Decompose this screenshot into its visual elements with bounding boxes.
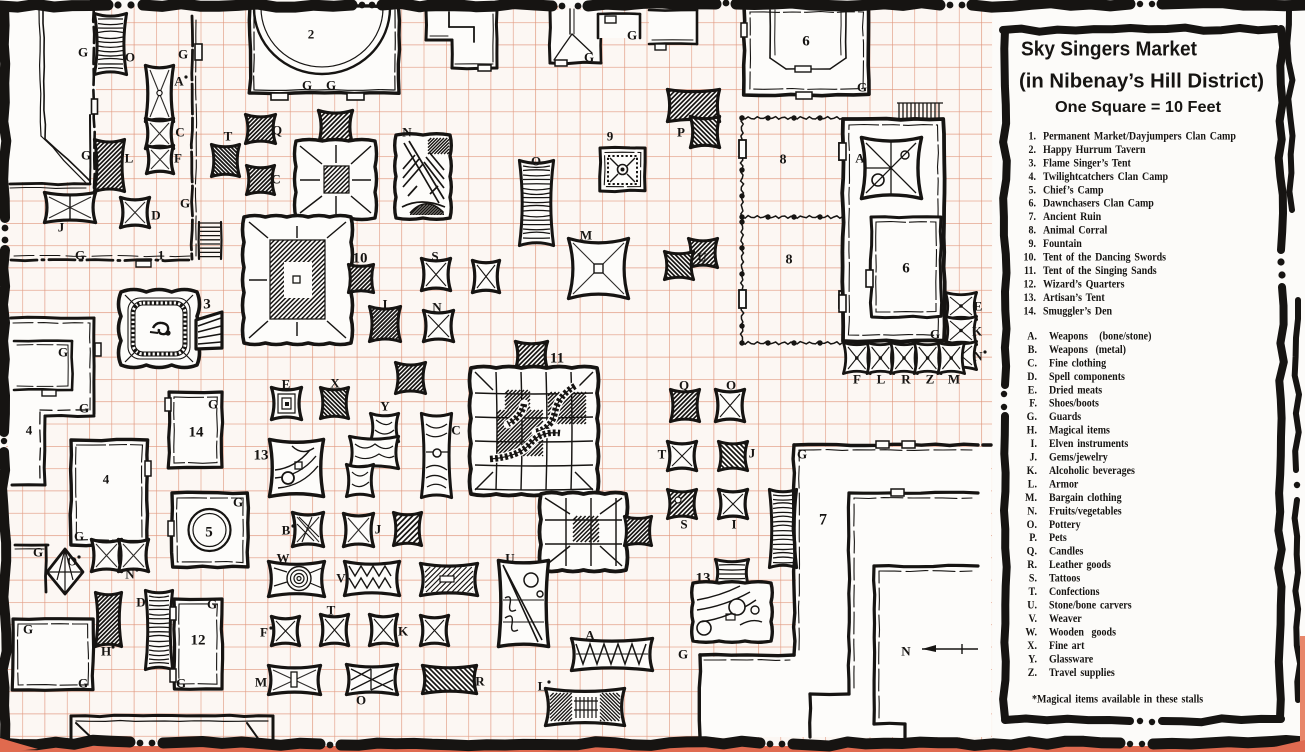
- svg-text:G: G: [81, 148, 91, 163]
- svg-text:Wizard’s Quarters: Wizard’s Quarters: [1043, 278, 1125, 291]
- svg-text:L: L: [538, 679, 547, 694]
- svg-text:F: F: [853, 372, 861, 387]
- svg-text:8: 8: [786, 253, 793, 268]
- svg-text:Armor: Armor: [1049, 478, 1079, 491]
- svg-text:Confections: Confections: [1049, 585, 1100, 598]
- svg-text:10.: 10.: [1024, 251, 1037, 264]
- svg-text:11.: 11.: [1024, 264, 1036, 277]
- svg-text:Candles: Candles: [1049, 545, 1083, 558]
- svg-text:Spell components: Spell components: [1049, 370, 1125, 383]
- svg-text:D: D: [151, 208, 160, 223]
- svg-text:J: J: [749, 446, 756, 461]
- svg-text:Weaver: Weaver: [1049, 612, 1082, 625]
- svg-text:6: 6: [802, 34, 810, 50]
- svg-text:Weapons (bone/stone): Weapons (bone/stone): [1049, 330, 1152, 343]
- svg-text:Pets: Pets: [1049, 532, 1067, 545]
- svg-text:(in Nibenay’s Hill District): (in Nibenay’s Hill District): [1019, 71, 1264, 93]
- svg-text:Guards: Guards: [1049, 411, 1081, 424]
- svg-text:Pottery: Pottery: [1049, 518, 1081, 531]
- svg-text:G: G: [79, 401, 89, 416]
- svg-text:Animal Corral: Animal Corral: [1043, 224, 1107, 237]
- svg-text:L: L: [877, 372, 886, 387]
- svg-text:D.: D.: [1027, 370, 1037, 383]
- svg-text:E: E: [974, 299, 983, 314]
- svg-text:W.: W.: [1025, 626, 1037, 639]
- svg-text:Fruits/vegetables: Fruits/vegetables: [1049, 505, 1122, 518]
- svg-text:M: M: [948, 372, 960, 387]
- svg-text:P.: P.: [1029, 532, 1037, 545]
- svg-text:5: 5: [205, 525, 213, 541]
- svg-text:Tattoos: Tattoos: [1049, 572, 1080, 585]
- svg-text:Chief’s Camp: Chief’s Camp: [1043, 184, 1104, 197]
- svg-text:K.: K.: [1027, 464, 1038, 477]
- svg-text:7.: 7.: [1029, 211, 1037, 224]
- svg-text:M.: M.: [1025, 491, 1037, 504]
- svg-text:3: 3: [203, 297, 211, 313]
- svg-text:12.: 12.: [1024, 278, 1037, 291]
- svg-text:I.: I.: [1031, 437, 1038, 450]
- svg-text:X.: X.: [1027, 639, 1037, 652]
- svg-text:9: 9: [607, 129, 614, 144]
- svg-text:L: L: [125, 151, 134, 166]
- svg-text:10: 10: [353, 251, 368, 267]
- svg-text:2.: 2.: [1029, 143, 1037, 156]
- svg-text:G: G: [78, 676, 88, 691]
- svg-text:Q: Q: [272, 123, 282, 138]
- svg-text:G: G: [75, 248, 85, 263]
- svg-text:5.: 5.: [1029, 184, 1037, 197]
- svg-text:Smuggler’s Den: Smuggler’s Den: [1043, 305, 1112, 318]
- svg-text:F.: F.: [1029, 397, 1037, 410]
- svg-text:J.: J.: [1029, 451, 1037, 464]
- svg-text:W: W: [277, 551, 290, 566]
- svg-text:G: G: [584, 50, 594, 65]
- svg-text:G: G: [678, 647, 688, 662]
- svg-text:G: G: [176, 676, 186, 691]
- svg-text:K: K: [972, 324, 983, 339]
- svg-text:G: G: [78, 45, 88, 60]
- svg-text:11: 11: [550, 351, 564, 367]
- svg-text:G: G: [233, 495, 243, 510]
- svg-text:T: T: [658, 447, 667, 462]
- svg-text:E: E: [282, 377, 291, 392]
- svg-text:X: X: [330, 376, 340, 391]
- svg-text:Glassware: Glassware: [1049, 653, 1093, 666]
- svg-text:S: S: [431, 249, 438, 264]
- svg-text:Magical items: Magical items: [1049, 424, 1110, 437]
- svg-text:O: O: [125, 50, 135, 65]
- svg-text:K: K: [398, 624, 409, 639]
- svg-text:C: C: [175, 125, 184, 140]
- svg-text:T: T: [327, 603, 336, 618]
- svg-text:Sky Singers Market: Sky Singers Market: [1021, 39, 1197, 61]
- svg-text:13: 13: [696, 571, 711, 587]
- svg-text:R.: R.: [1027, 559, 1037, 572]
- svg-text:D: D: [136, 595, 145, 610]
- svg-text:U: U: [505, 551, 515, 566]
- svg-text:F: F: [174, 151, 182, 166]
- svg-text:M: M: [255, 675, 267, 690]
- svg-text:Wooden goods: Wooden goods: [1049, 626, 1116, 639]
- svg-text:N: N: [125, 567, 135, 582]
- svg-text:1: 1: [158, 248, 165, 263]
- svg-text:7: 7: [819, 512, 827, 529]
- svg-text:C.: C.: [1027, 357, 1037, 370]
- svg-text:G: G: [33, 545, 43, 560]
- svg-text:Q: Q: [679, 378, 689, 393]
- svg-text:Gems/jewelry: Gems/jewelry: [1049, 451, 1108, 464]
- svg-text:Permanent Market/Dayjumpers Cl: Permanent Market/Dayjumpers Clan Camp: [1043, 130, 1236, 143]
- svg-text:Y.: Y.: [1028, 653, 1037, 666]
- svg-text:V.: V.: [1029, 612, 1038, 625]
- svg-text:O: O: [531, 154, 541, 169]
- svg-text:Q.: Q.: [1027, 545, 1038, 558]
- svg-text:G: G: [207, 597, 217, 612]
- svg-text:Travel supplies: Travel supplies: [1049, 666, 1115, 679]
- svg-text:G: G: [23, 622, 33, 637]
- svg-text:R: R: [475, 674, 485, 689]
- svg-text:3.: 3.: [1029, 157, 1037, 170]
- svg-text:O.: O.: [1027, 518, 1038, 531]
- svg-text:Y: Y: [380, 399, 390, 414]
- svg-text:O: O: [356, 693, 366, 708]
- svg-text:4.: 4.: [1029, 170, 1037, 183]
- svg-text:Z: Z: [926, 372, 935, 387]
- svg-text:J: J: [58, 220, 65, 235]
- svg-text:Dawnchasers Clan Camp: Dawnchasers Clan Camp: [1043, 197, 1154, 210]
- svg-text:Shoes/boots: Shoes/boots: [1049, 397, 1099, 410]
- svg-text:A: A: [585, 628, 595, 643]
- svg-text:H.: H.: [1027, 424, 1038, 437]
- svg-text:G: G: [930, 327, 940, 342]
- svg-text:I: I: [382, 297, 387, 312]
- svg-text:Happy Hurrum Tavern: Happy Hurrum Tavern: [1043, 143, 1146, 156]
- svg-text:L.: L.: [1028, 478, 1037, 491]
- svg-text:T.: T.: [1029, 585, 1038, 598]
- svg-text:Leather goods: Leather goods: [1049, 559, 1111, 572]
- svg-text:Tent of the Singing Sands: Tent of the Singing Sands: [1043, 264, 1157, 277]
- svg-text:G: G: [857, 80, 867, 95]
- svg-text:G: G: [797, 447, 807, 462]
- svg-text:A: A: [855, 151, 865, 166]
- svg-text:S: S: [680, 517, 687, 532]
- svg-text:14: 14: [189, 425, 205, 441]
- svg-text:4: 4: [26, 423, 33, 438]
- svg-text:Fine clothing: Fine clothing: [1049, 357, 1107, 370]
- svg-text:Dried meats: Dried meats: [1049, 384, 1102, 397]
- svg-text:I: I: [731, 517, 736, 532]
- svg-text:G: G: [58, 345, 68, 360]
- svg-text:Fine art: Fine art: [1049, 639, 1085, 652]
- svg-text:U: U: [697, 250, 707, 265]
- svg-text:H: H: [101, 644, 111, 659]
- svg-text:G: G: [302, 78, 312, 93]
- svg-text:A.: A.: [1027, 330, 1037, 343]
- svg-text:R: R: [901, 372, 911, 387]
- svg-text:G: G: [627, 28, 637, 43]
- svg-text:V: V: [336, 571, 346, 586]
- svg-text:M: M: [580, 228, 592, 243]
- svg-text:Bargain clothing: Bargain clothing: [1049, 491, 1122, 504]
- svg-text:N: N: [432, 300, 442, 315]
- svg-text:O: O: [726, 378, 736, 393]
- svg-text:N: N: [901, 644, 911, 659]
- svg-text:C: C: [271, 172, 280, 187]
- svg-text:F: F: [260, 625, 268, 640]
- svg-text:B.: B.: [1028, 343, 1037, 356]
- svg-text:8: 8: [780, 153, 787, 168]
- svg-text:T: T: [224, 129, 233, 144]
- svg-text:Stone/bone carvers: Stone/bone carvers: [1049, 599, 1132, 612]
- svg-text:13: 13: [254, 448, 269, 464]
- svg-text:One Square = 10 Feet: One Square = 10 Feet: [1055, 99, 1222, 116]
- svg-text:N: N: [402, 125, 412, 140]
- svg-text:C: C: [451, 423, 460, 438]
- svg-text:Twilightcatchers Clan Camp: Twilightcatchers Clan Camp: [1043, 170, 1168, 183]
- svg-text:S.: S.: [1029, 572, 1037, 585]
- svg-text:Elven instruments: Elven instruments: [1049, 437, 1128, 450]
- svg-text:8.: 8.: [1029, 224, 1037, 237]
- svg-text:P: P: [677, 125, 685, 140]
- svg-text:N: N: [973, 349, 983, 364]
- svg-text:Weapons (metal): Weapons (metal): [1049, 343, 1126, 356]
- svg-text:U.: U.: [1027, 599, 1037, 612]
- svg-text:J: J: [375, 522, 382, 537]
- svg-text:O: O: [67, 554, 77, 569]
- svg-text:G.: G.: [1027, 411, 1038, 424]
- svg-text:Tent of the Dancing Swords: Tent of the Dancing Swords: [1043, 251, 1166, 264]
- svg-text:12: 12: [191, 633, 206, 649]
- svg-text:Flame Singer’s Tent: Flame Singer’s Tent: [1043, 157, 1131, 170]
- svg-text:A: A: [174, 74, 184, 89]
- svg-text:6.: 6.: [1029, 197, 1037, 210]
- svg-text:1.: 1.: [1029, 130, 1037, 143]
- svg-text:Alcoholic beverages: Alcoholic beverages: [1049, 464, 1135, 477]
- svg-text:14.: 14.: [1024, 305, 1037, 318]
- svg-text:2: 2: [308, 27, 315, 42]
- svg-text:G: G: [208, 397, 218, 412]
- svg-text:4: 4: [103, 472, 110, 487]
- svg-text:Ancient Ruin: Ancient Ruin: [1043, 211, 1101, 224]
- svg-text:9.: 9.: [1029, 237, 1037, 250]
- svg-text:N.: N.: [1027, 505, 1037, 518]
- svg-text:Fountain: Fountain: [1043, 237, 1082, 250]
- svg-text:G: G: [180, 196, 190, 211]
- svg-text:E.: E.: [1028, 384, 1037, 397]
- svg-text:*Magical items available in th: *Magical items available in these stalls: [1032, 693, 1203, 706]
- svg-text:G: G: [178, 47, 188, 62]
- svg-text:B: B: [282, 523, 291, 538]
- svg-text:G: G: [74, 529, 84, 544]
- svg-text:6: 6: [902, 261, 910, 277]
- svg-text:G: G: [326, 78, 336, 93]
- svg-text:Artisan’s Tent: Artisan’s Tent: [1043, 291, 1105, 304]
- svg-text:13.: 13.: [1024, 291, 1037, 304]
- svg-text:Z.: Z.: [1028, 666, 1037, 679]
